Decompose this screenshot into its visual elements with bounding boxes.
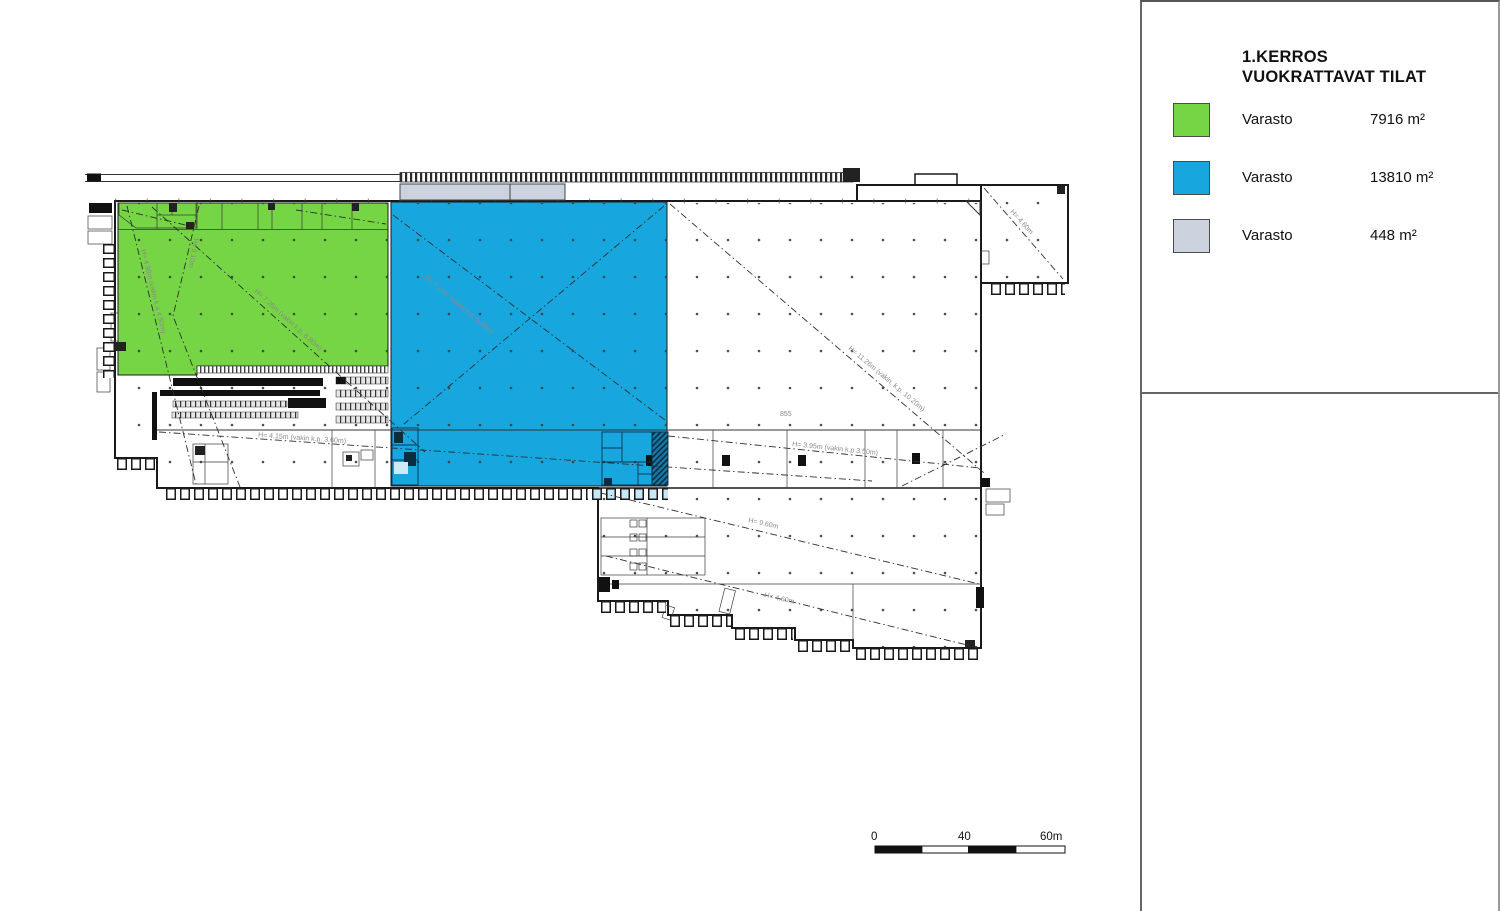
area-gray-448 xyxy=(400,184,565,200)
roof-bump xyxy=(915,174,957,185)
legend-item-label: Varasto xyxy=(1242,111,1293,128)
legend-item-gray: Varasto 448 m² xyxy=(1142,219,1498,255)
panel-divider xyxy=(1142,392,1498,394)
legend-panel: 1.KERROS VUOKRATTAVAT TILAT Varasto 7916… xyxy=(1140,0,1500,911)
legend-item-blue: Varasto 13810 m² xyxy=(1142,161,1498,197)
floor-plan-canvas: H= 4.90m (vakin k.a 4.50m) Hs 8.10m H= 7… xyxy=(0,0,1140,911)
legend-title: 1.KERROS VUOKRATTAVAT TILAT xyxy=(1242,47,1426,87)
legend-item-area: 448 m² xyxy=(1370,227,1417,244)
legend-swatch-blue xyxy=(1173,161,1210,195)
scale-label-0: 0 xyxy=(871,831,877,843)
legend-item-label: Varasto xyxy=(1242,227,1293,244)
legend-swatch-green xyxy=(1173,103,1210,137)
scale-label-60m: 60m xyxy=(1040,831,1062,843)
page: { "legend": { "title_line1": "1.KERROS",… xyxy=(0,0,1500,911)
legend-title-line2: VUOKRATTAVAT TILAT xyxy=(1242,67,1426,87)
railway-track xyxy=(85,168,860,182)
legend-swatch-gray xyxy=(1173,219,1210,253)
scale-label-40: 40 xyxy=(958,831,971,843)
legend-title-line1: 1.KERROS xyxy=(1242,47,1426,67)
legend-item-label: Varasto xyxy=(1242,169,1293,186)
scale-bar: 0 40 60m xyxy=(871,831,1065,853)
annotation-text: 855 xyxy=(780,411,792,418)
legend-item-area: 13810 m² xyxy=(1370,169,1433,186)
legend-item-green: Varasto 7916 m² xyxy=(1142,103,1498,139)
legend-item-area: 7916 m² xyxy=(1370,111,1425,128)
